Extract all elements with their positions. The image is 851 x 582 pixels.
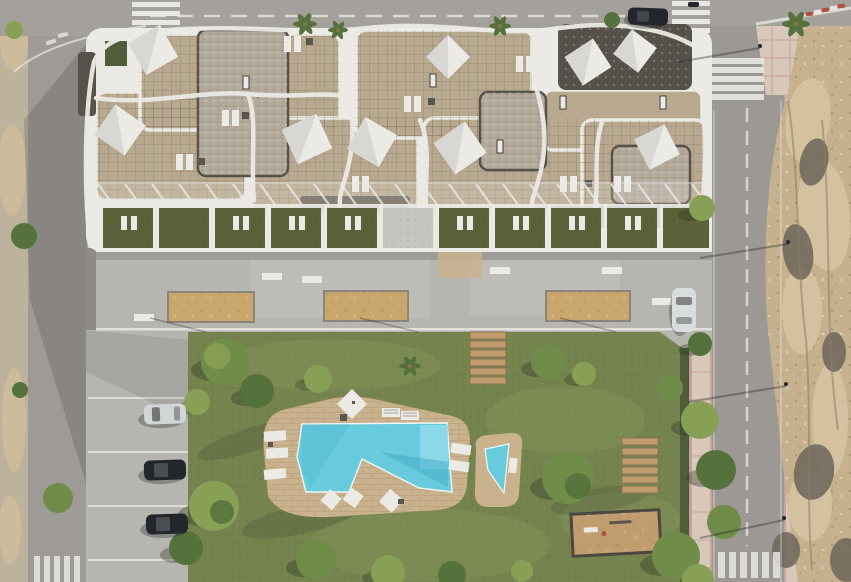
- bush: [5, 21, 23, 39]
- bush: [11, 223, 37, 249]
- sun-lounger: [264, 468, 287, 480]
- playground-slide: [584, 527, 598, 533]
- roof-vent: [497, 140, 503, 153]
- sun-lounger: [264, 430, 287, 442]
- crosswalk-top-left: [132, 2, 180, 25]
- ground-terraces: [96, 204, 712, 252]
- tree: [511, 560, 533, 582]
- aerial-render: Aerial top-down 3D architectural render …: [0, 0, 851, 582]
- promenade-top-shadow: [96, 252, 712, 260]
- tree: [707, 505, 741, 539]
- parked-car-white: [669, 288, 696, 336]
- roof-vent: [660, 96, 666, 109]
- motorbike: [688, 2, 699, 7]
- terrace-grass-texture: [103, 208, 709, 248]
- pergola-band: [96, 182, 712, 204]
- sun-lounger: [508, 458, 518, 474]
- bench: [602, 267, 622, 274]
- bench: [652, 298, 672, 305]
- planter-texture: [168, 291, 630, 322]
- bench: [302, 276, 322, 283]
- bush: [43, 483, 73, 513]
- roof-vent: [243, 76, 249, 89]
- left-sidewalk: [0, 0, 28, 582]
- playground: [571, 510, 661, 557]
- tree: [604, 12, 620, 28]
- playground-texture: [571, 510, 661, 557]
- building-base-line: [96, 249, 712, 252]
- stone-access-patch: [438, 252, 482, 278]
- tree: [657, 375, 683, 401]
- bench: [490, 267, 510, 274]
- sun-lounger: [266, 447, 288, 458]
- bush: [12, 382, 28, 398]
- bench: [262, 273, 282, 280]
- building: [78, 18, 712, 252]
- roof-vent: [560, 96, 566, 109]
- roof-vent: [430, 74, 436, 87]
